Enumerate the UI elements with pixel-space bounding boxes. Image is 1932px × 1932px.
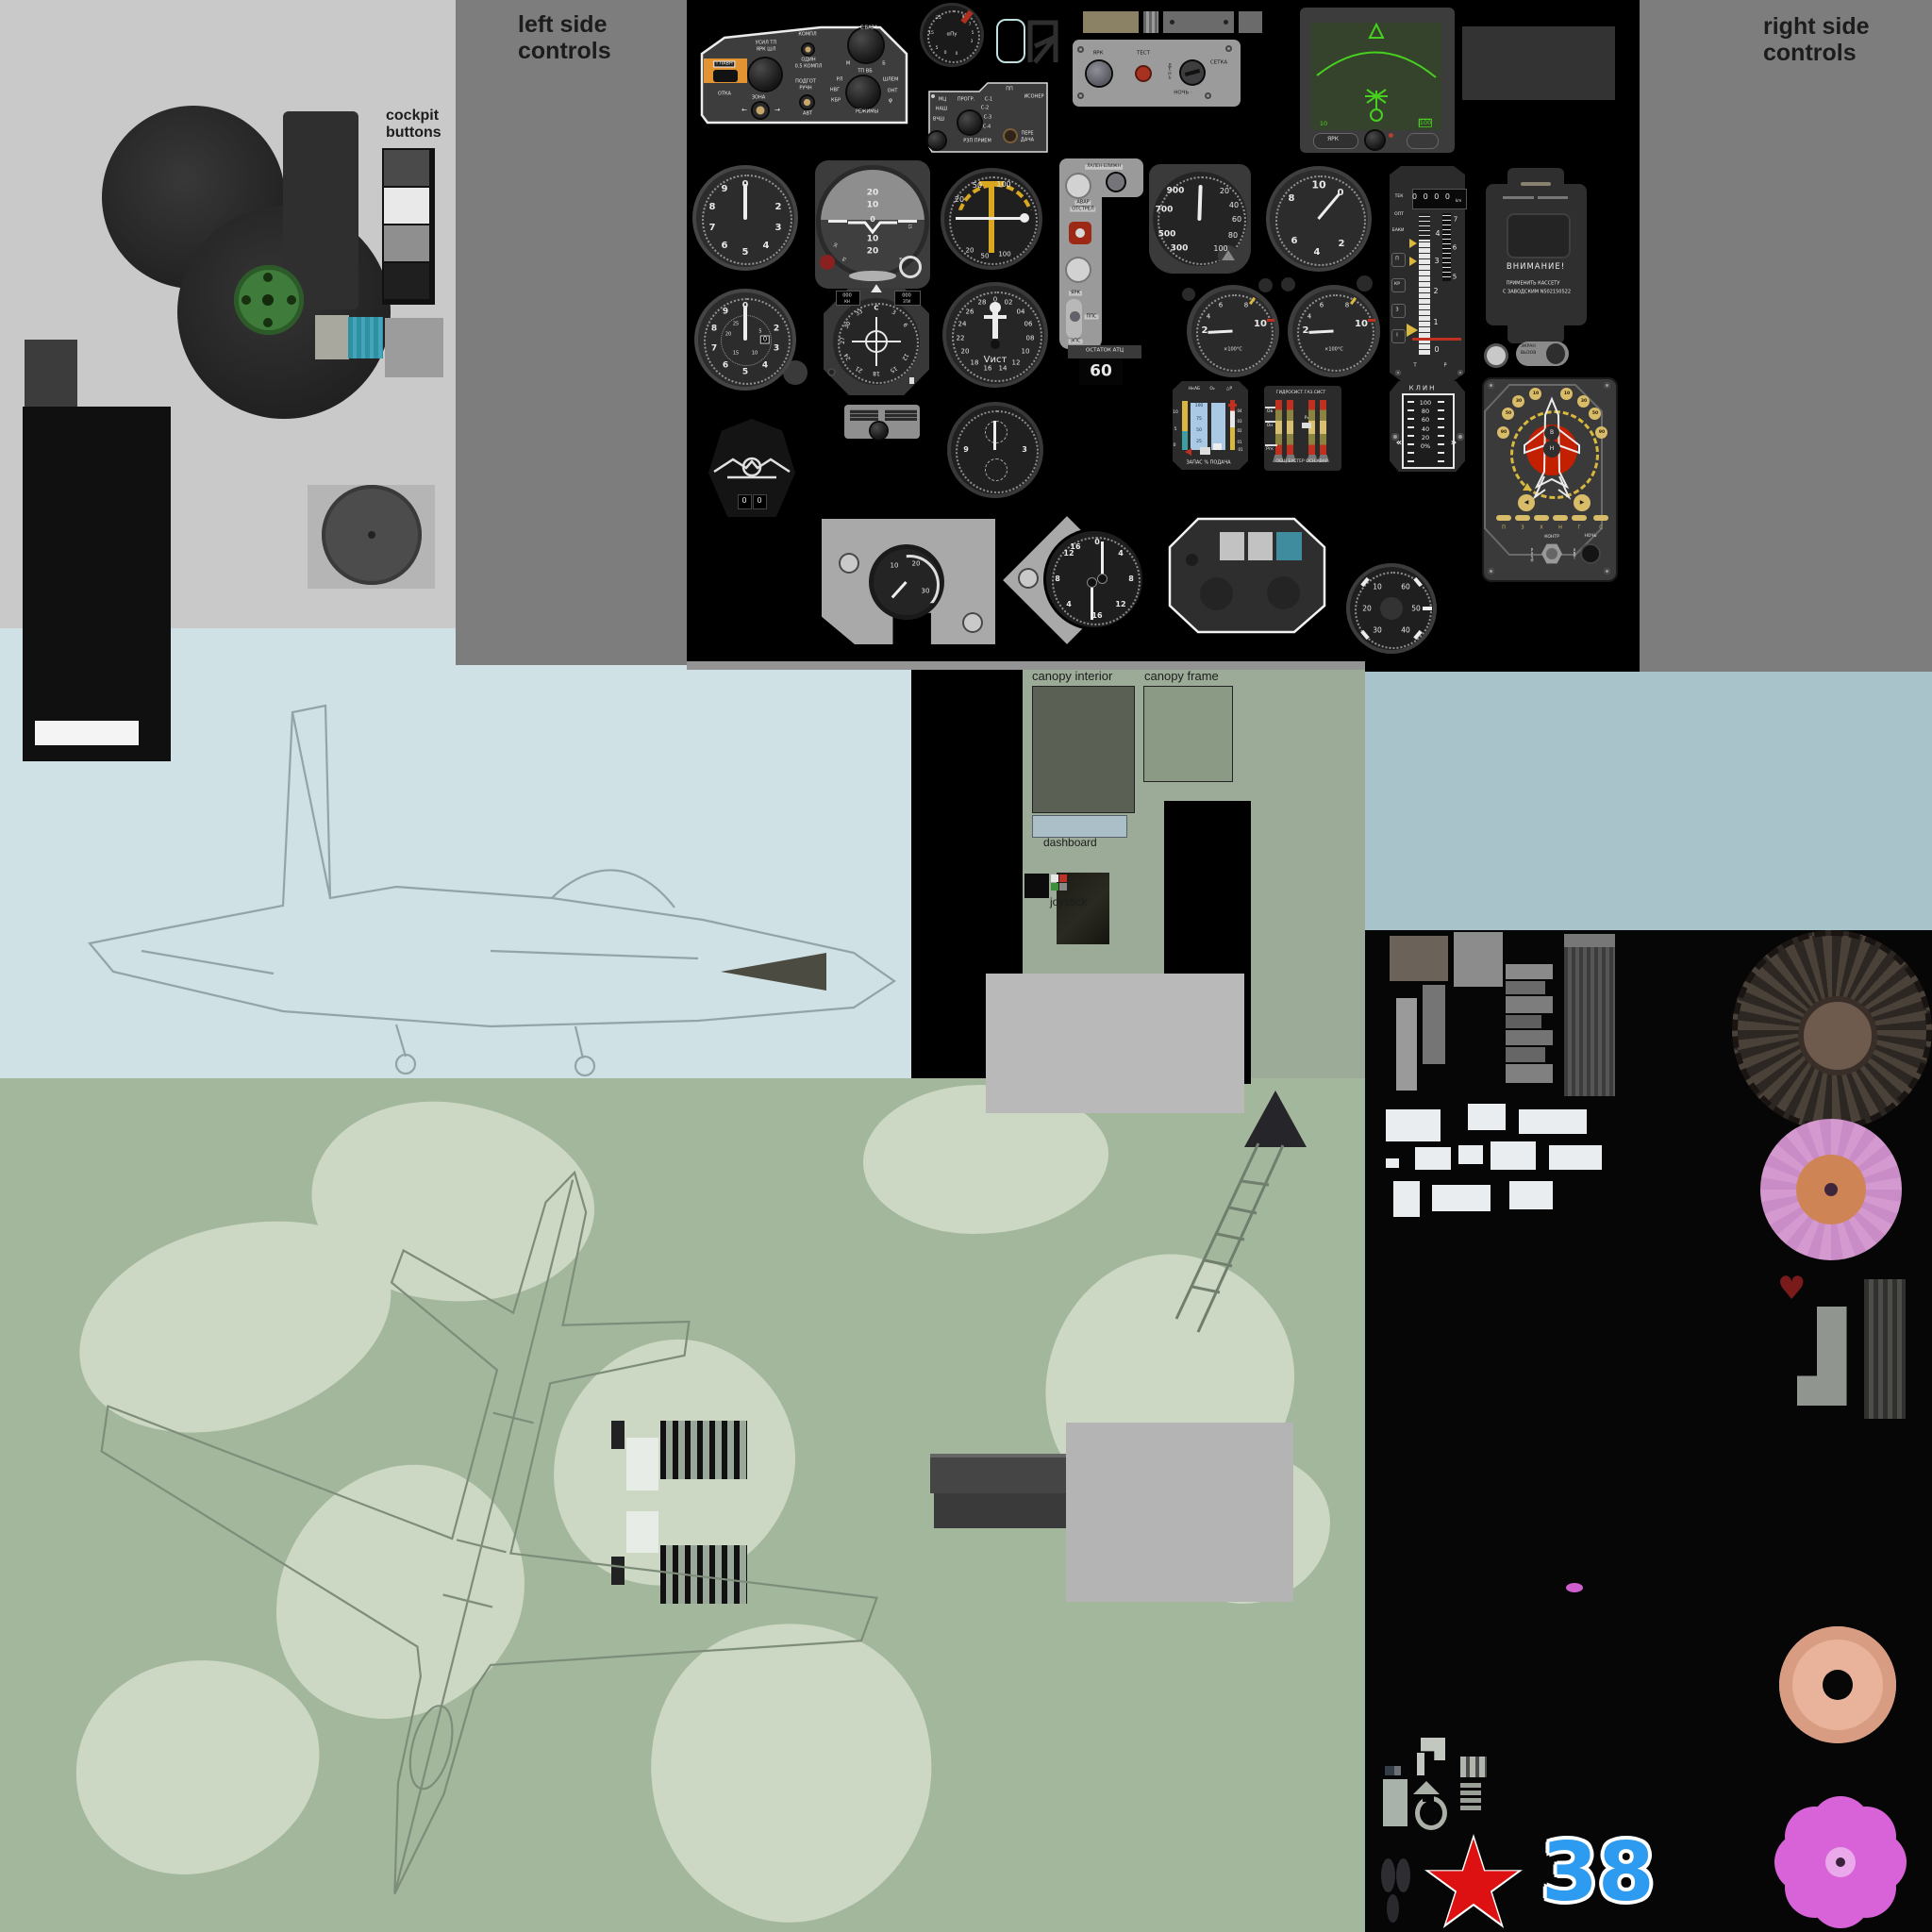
gear-door-white <box>1432 1185 1491 1211</box>
missile-lamp-value: 90 <box>1599 431 1605 436</box>
fuel-ladder-scale: 3 <box>1434 258 1439 265</box>
yark-knob <box>1087 61 1111 86</box>
rezhimy-knob <box>847 76 879 108</box>
left-panel-label: ПОДГОТ <box>795 80 816 85</box>
zone-right-arrow: → <box>774 108 780 114</box>
vist-figure-arms <box>984 315 1007 319</box>
missile-yellow-triangle <box>1523 483 1532 491</box>
fuel-ladder-button-label: I <box>1396 334 1397 339</box>
left-panel-label: АВТ <box>803 112 812 117</box>
vist-figure-head <box>990 302 1001 313</box>
taupe-box-part <box>1390 936 1448 981</box>
hub-lug <box>287 295 296 305</box>
ladder-rung <box>1460 1783 1481 1788</box>
gear-door-white <box>1458 1145 1483 1164</box>
intake-part <box>934 1493 1066 1528</box>
fuel-ladder-scale: 4 <box>1435 230 1440 238</box>
plate-screw <box>839 553 859 574</box>
rpm-gauge-scale: 40 <box>1401 626 1410 634</box>
louver <box>1506 1030 1553 1045</box>
small-dark-circle <box>1182 288 1195 301</box>
panel-screw <box>1077 46 1084 53</box>
joystick-swatch-gray <box>1059 883 1067 891</box>
dualclock-scale: 9 <box>723 308 728 317</box>
warning-light-bar <box>1538 196 1568 199</box>
fuel-ladder-counter: 0 0 0 0 <box>1412 193 1452 201</box>
missile-lamp-value: 10 <box>1564 392 1570 397</box>
dualclock-scale: 8 <box>711 325 717 334</box>
fuel-remaining-value: 60 <box>1090 364 1112 380</box>
hsi-window: КН <box>844 300 850 304</box>
panel-screw <box>1205 92 1211 99</box>
nozzle-white-part <box>626 1438 658 1491</box>
aoa-scale: 5 <box>936 47 939 52</box>
hub-center <box>262 294 274 306</box>
hex-knob-core <box>1546 548 1557 559</box>
oxygen-panel-label: НкАБ <box>1189 388 1200 392</box>
diamond-needle-up <box>1101 541 1104 579</box>
fuel-ladder-label: Р <box>1443 364 1446 369</box>
bar-dot <box>1170 20 1174 25</box>
gray-bar-part2 <box>1239 11 1262 33</box>
dualclock-inner-scale: 25 <box>733 323 739 327</box>
oxygen-white-box <box>1200 447 1210 455</box>
label-canopy-frame: canopy frame <box>1144 670 1219 684</box>
klin-chevron: « <box>1396 439 1402 448</box>
test-panel-label: НОЧЬ · <box>1174 91 1192 96</box>
missile-lamp-letter: З <box>1521 526 1524 531</box>
radio-text-block <box>850 409 878 421</box>
part-tall-black <box>23 407 171 761</box>
zone-left-band <box>456 0 687 665</box>
jettison-panel-label: ЯРК <box>1069 291 1082 296</box>
sbaza-knob <box>849 28 883 62</box>
diamond-pivot <box>1088 578 1096 587</box>
vario-scale: 100 <box>996 181 1010 189</box>
radio-text-block <box>885 409 917 421</box>
radio-knob <box>871 423 887 439</box>
aoa-scale: 3 <box>971 40 974 43</box>
altimeter-scale: 2 <box>1339 240 1345 249</box>
hydro-line <box>1265 407 1275 408</box>
octagon-circle <box>1200 577 1233 610</box>
turbine-fan-texture <box>1732 930 1932 1130</box>
fuel-ladder-button-label: КР <box>1394 283 1400 288</box>
gear-door-white <box>1549 1145 1602 1170</box>
attitude-pitch-scale: 10 <box>867 236 879 244</box>
eject-arrow-icon <box>1413 1781 1440 1794</box>
clock-scale: 3 <box>775 224 782 233</box>
egt2-red-mark <box>1368 319 1375 322</box>
hydraulic-panel-label: Ов <box>1267 410 1273 415</box>
striped-block-part <box>1864 1279 1906 1419</box>
cockpit-button-black <box>384 263 429 299</box>
oxygen-scale: 100 <box>1195 405 1204 409</box>
oxygen-scale: 03 <box>1237 420 1241 424</box>
jettison-panel-label: ОТСТРЕЛ <box>1070 208 1095 212</box>
label-cockpit-buttons: cockpit buttons <box>386 108 441 142</box>
dualclock-ear <box>783 360 808 385</box>
rpm-gauge-scale: 10 <box>1373 583 1382 591</box>
oxygen-scale: 5 <box>1174 428 1177 433</box>
egt1-scale: 10 <box>1254 320 1267 329</box>
jettison-slider-thumb <box>1070 311 1080 322</box>
hsi-window: ЗТИ <box>903 300 910 304</box>
vario-scale: 50 <box>981 254 990 260</box>
warning-screen <box>1507 213 1571 258</box>
left-panel-label: ГЛАВН <box>714 62 734 67</box>
oxygen-scale: 04 <box>1237 409 1241 413</box>
ladder-rung <box>1460 1806 1481 1810</box>
attitude-pitch-scale: 20 <box>867 190 879 198</box>
jettison-red-button <box>1069 222 1091 244</box>
gear-door-white <box>1386 1158 1399 1168</box>
fuel-yellow-arrow <box>1407 324 1418 337</box>
pink-donut-texture <box>1760 1119 1902 1260</box>
light-gray-plate <box>986 974 1244 1113</box>
warning-panel-tab <box>1507 323 1564 343</box>
pressure-gauge-scale: 20 <box>912 561 921 568</box>
egt1-unit: ×100°C <box>1224 348 1242 353</box>
oxygen-scale: 0 <box>1174 444 1176 449</box>
ekran-label: ЭКРАН <box>1521 345 1536 350</box>
diamond-clock-scale: 4 <box>1066 601 1072 608</box>
vertical-strip-part <box>1396 998 1417 1091</box>
ladder-rung <box>1460 1790 1481 1795</box>
vertical-strip-part <box>1423 985 1445 1064</box>
vist-scale: 14 <box>999 366 1008 373</box>
hsi-compass-scale: 18 <box>873 370 880 375</box>
dualclock-scale: 5 <box>742 369 748 377</box>
chrono-subdial <box>985 421 1008 443</box>
nozzle-white-part <box>626 1511 658 1553</box>
egt2-scale: 4 <box>1307 314 1311 321</box>
gear-door-white <box>1491 1141 1536 1170</box>
fuel-ladder-label: ОПТ <box>1394 213 1404 218</box>
striped-part <box>1143 11 1158 33</box>
hydro-line <box>1265 444 1277 446</box>
left-panel-label: ШЛЕМ <box>883 78 899 83</box>
glavn-switch-handle <box>713 70 738 82</box>
vist-scale: 0 <box>993 297 997 304</box>
hsi-compass-scale: 27 <box>841 337 846 344</box>
missile-lamp-value: 10 <box>1533 392 1539 397</box>
dualclock-inner-scale: 5 <box>758 330 761 335</box>
program-panel-label: ПП <box>1006 88 1013 92</box>
oxygen-scale: 50 <box>1196 429 1202 434</box>
egt1-scale: 4 <box>1207 314 1210 321</box>
left-panel-label: УСИЛ ТП <box>756 42 776 46</box>
hub-lug <box>241 295 251 305</box>
rpm-gauge-scale: 20 <box>1362 605 1372 612</box>
missile-lamp-letter: П <box>1502 526 1506 531</box>
round-plate-disc <box>322 485 422 585</box>
dualclock-scale: 0 <box>742 303 748 311</box>
warning-title: ВНИМАНИЕ! <box>1507 263 1565 272</box>
missile-lozenge <box>1553 515 1568 521</box>
part-teal-striped <box>348 317 383 358</box>
louver <box>1506 981 1545 994</box>
hydraulic-panel-label: ОБЩ БУСТЕР ОСН.АВАР <box>1275 460 1327 465</box>
egt1-scale: 6 <box>1219 303 1223 309</box>
vist-scale: 04 <box>1017 309 1025 316</box>
klin-screw <box>1457 433 1464 441</box>
diamond-screw <box>1018 568 1039 589</box>
clock-scale: 8 <box>709 203 716 212</box>
fuel-ladder-scale: 7 <box>1454 217 1457 224</box>
usil-tp-knob <box>749 58 781 91</box>
louver-stack <box>1506 964 1553 1085</box>
aoa-scale: 7 <box>969 23 972 26</box>
left-panel-label: ОТКА <box>718 92 731 97</box>
ladder-rung <box>1460 1798 1481 1803</box>
attitude-red-knob <box>820 255 835 270</box>
left-panel-label: НВГ <box>830 89 840 93</box>
label-left-side-controls: left side controls <box>518 11 611 64</box>
altimeter-scale: 10 <box>1311 180 1325 191</box>
vist-scale: 18 <box>971 360 979 367</box>
egt2-scale: 2 <box>1303 326 1309 336</box>
fuel-ladder-label: БАКИ <box>1392 229 1405 234</box>
program-panel-label: ПРОГР. <box>958 98 974 103</box>
plate-screw <box>962 612 983 633</box>
cap-part-light <box>1394 1766 1401 1775</box>
hydraulic-panel-label: Он <box>1267 425 1273 429</box>
test-red-button <box>1137 67 1150 80</box>
vario-scale: 50 <box>973 182 982 190</box>
oxygen-panel-label: ЗАПАС % ПОДАЧА <box>1186 461 1230 466</box>
tan-strip-part <box>1083 11 1139 33</box>
aoa-scale: 0 <box>956 52 958 56</box>
test-panel-label: ЯРК <box>1092 51 1103 57</box>
missile-screw <box>1604 382 1610 389</box>
rpm-gauge-scale: 30 <box>1373 626 1382 634</box>
cyan-outline-part <box>996 19 1025 63</box>
altimeter-scale: 0 <box>1338 189 1344 198</box>
setka-knob <box>1181 61 1204 84</box>
left-panel-label: ТП ВБ <box>858 69 872 74</box>
vist-scale: 10 <box>1022 349 1030 356</box>
magenta-flower-texture <box>1788 1809 1893 1915</box>
radiator-part <box>1564 934 1615 1096</box>
vist-scale: 20 <box>961 349 970 356</box>
missile-lozenge <box>1515 515 1530 521</box>
hub-lug <box>263 273 273 282</box>
dualclock-scale: 6 <box>723 362 728 371</box>
warning-text: ПРИМЕНИТЬ КАССЕТУ <box>1507 282 1560 287</box>
joystick-swatch-green <box>1051 883 1058 891</box>
louver <box>1506 964 1553 979</box>
turbine-hub <box>1798 996 1877 1075</box>
white-slot <box>35 721 139 745</box>
dualclock-scale: 3 <box>774 345 779 354</box>
program-small-knob <box>928 132 945 149</box>
hsi-window: 000 <box>842 294 852 299</box>
louver <box>1506 1064 1553 1083</box>
hydraulic-panel-label: Ргк <box>1266 448 1274 453</box>
gear-door-white <box>1509 1181 1553 1209</box>
flower-hole <box>1836 1857 1845 1867</box>
left-panel-label: РЕЖИМЫ <box>856 110 878 115</box>
missile-arrow-right: ▶ <box>1580 500 1585 506</box>
missile-lozenge <box>1496 515 1511 521</box>
program-panel-label: С-1 <box>985 98 992 103</box>
hsi-window: 000 <box>902 294 911 299</box>
crt-brightness-label: ЯРК <box>1327 137 1339 142</box>
label-right-side-controls: right side controls <box>1763 13 1870 66</box>
missile-lamp-value: 50 <box>1506 412 1511 417</box>
cockpit-button-white <box>384 188 429 225</box>
oxygen-scale: 75 <box>1196 418 1202 423</box>
clock-scale: 2 <box>775 203 782 212</box>
diamond-pivot <box>1098 575 1107 583</box>
vario-scale: 100 <box>998 252 1010 258</box>
diamond-clock-scale: 16 <box>1091 612 1102 620</box>
missile-lamp-letter: Х <box>1540 526 1542 531</box>
zone-blue-right <box>1365 672 1932 930</box>
program-panel-label: С-3 <box>984 116 991 121</box>
fuel-ladder-scale: 2 <box>1433 288 1438 295</box>
left-panel-label: КОМПЛ <box>798 33 816 38</box>
test-panel-label: Д Е Н Ь <box>1168 64 1172 80</box>
missile-lozenge <box>1572 515 1587 521</box>
joystick-black-square <box>1024 874 1049 898</box>
kompl-knob <box>803 44 813 55</box>
gear-door-white <box>1386 1109 1441 1141</box>
pink-donut-hole <box>1824 1183 1838 1196</box>
egt2-scale: 10 <box>1355 320 1368 329</box>
crt-range-high: 100 <box>1420 120 1431 126</box>
missile-lamp-letter: С <box>1599 526 1603 531</box>
dualclock-scale: 7 <box>711 345 717 354</box>
left-panel-label: 0.5 КОМПЛ <box>795 64 823 69</box>
program-panel-label: ВЧШ <box>933 118 944 123</box>
red-button-core <box>1075 228 1085 238</box>
aoa-scale: 9 <box>962 15 965 19</box>
oxygen-left-bar <box>1182 401 1188 450</box>
jettison-panel-label: АВАР <box>1074 201 1091 206</box>
missile-lozenge <box>1593 515 1608 521</box>
clock-scale: 7 <box>709 224 716 233</box>
klin-tick-column <box>1438 398 1444 462</box>
fuel-ladder-label: ТЕК <box>1395 195 1404 200</box>
left-panel-label: РЛ <box>837 78 843 83</box>
octagon-small-circle <box>1186 554 1198 566</box>
panel-screw <box>1077 92 1084 99</box>
aoa-scale: 0 <box>944 52 947 57</box>
rpm-heavy-mark <box>1423 607 1432 610</box>
nozzle-stripes <box>660 1421 747 1479</box>
hydraulic-panel-title: ГИДРОСИСТ.ГАЗ.СИСТ <box>1276 391 1325 396</box>
program-panel-label: ПЕРЕ <box>1021 132 1033 137</box>
gear-door-white <box>1468 1104 1506 1130</box>
gear-door-white <box>1415 1147 1451 1170</box>
oxygen-scale: 01 <box>1238 448 1242 452</box>
missile-lozenge <box>1534 515 1549 521</box>
nozzle-stripes <box>660 1545 747 1604</box>
texture-atlas-canvas: left side controls right side controls c… <box>0 0 1932 1932</box>
hydro-bar <box>1275 400 1282 455</box>
label-joystick: joystick <box>1050 896 1087 908</box>
diamond-clock-scale: 8 <box>1128 575 1134 583</box>
missile-lamp-value: 90 <box>1501 431 1507 436</box>
joystick-swatch-red <box>1059 874 1067 882</box>
cockpit-button-strip <box>382 148 435 305</box>
attitude-horizon-bar <box>828 220 847 223</box>
missile-lamp-value: 50 <box>1592 412 1598 417</box>
fuel-screw <box>1395 370 1401 375</box>
diamond-clock-scale: 12 <box>1115 601 1125 608</box>
left-panel-label: Б <box>882 62 885 67</box>
program-panel-label: РЗП ПРИЕМ <box>963 140 991 144</box>
octagon-circle <box>1267 576 1300 609</box>
vist-scale: 26 <box>966 309 974 316</box>
peredacha-button <box>1005 130 1016 142</box>
fuel-yellow-arrow <box>1409 239 1417 248</box>
klin-tick-column <box>1407 398 1414 462</box>
diamond-clock-scale: 8 <box>1055 575 1060 583</box>
left-panel-label: М <box>846 62 850 67</box>
dualclock-inner-scale: 20 <box>725 333 731 338</box>
emblem-counter: 0 <box>757 497 761 505</box>
hydro-p2-box <box>1302 423 1311 428</box>
small-dark-circle <box>1281 277 1295 291</box>
jettison-knob <box>1108 174 1124 191</box>
label-dashboard: dashboard <box>1043 837 1097 849</box>
missile-screw <box>1604 568 1610 575</box>
dark-oval-part <box>1396 1858 1410 1892</box>
missile-indicator-label: Р У Ч Н <box>1530 548 1533 562</box>
vist-scale: 08 <box>1026 336 1035 342</box>
altimeter-scale: 6 <box>1291 237 1298 246</box>
clock-scale: 9 <box>722 185 728 194</box>
hydro-line <box>1265 421 1275 423</box>
joystick-swatch-white <box>1051 874 1058 882</box>
program-panel-label: С-2 <box>981 107 989 111</box>
warning-text: С ЗАВОДСКИМ N502150522 <box>1503 291 1571 295</box>
rpm-gauge-scale: 60 <box>1401 583 1410 591</box>
disc-center <box>368 531 375 539</box>
clock-scale: 4 <box>763 241 770 251</box>
panel-bottom-strip <box>687 661 1365 670</box>
bar-dot <box>1224 20 1228 25</box>
night-button <box>1582 545 1599 562</box>
panel-screw <box>1225 45 1232 52</box>
missile-lamp-value: 30 <box>1516 400 1522 405</box>
airspeed-scale: 300 <box>1171 245 1189 254</box>
lamp-square-white <box>1248 532 1273 560</box>
fuel-ladder-label: Т <box>1413 364 1416 369</box>
radar-crt-screen <box>1311 23 1441 130</box>
attitude-bank-scale: 15 <box>908 224 911 228</box>
louver <box>1506 1047 1545 1062</box>
small-dark-circle <box>1357 275 1373 291</box>
knob-slot <box>1185 69 1200 76</box>
part-dark-rect <box>25 340 77 407</box>
vist-scale: 06 <box>1024 322 1033 328</box>
gear-door-white <box>1519 1109 1587 1134</box>
missile-indicator-label: НОЧЬ <box>1584 535 1596 540</box>
attitude-pitch-scale: 0 <box>870 216 875 224</box>
oxygen-panel-label: △Р <box>1226 388 1232 392</box>
airspeed-scale: 900 <box>1167 188 1185 196</box>
crt-range-low: 10 <box>1320 121 1327 127</box>
klin-title: КЛИН <box>1409 386 1437 392</box>
gray-block-part <box>1066 1423 1293 1602</box>
left-panel-label: ОДИН <box>801 58 815 63</box>
airspeed-scale: 40 <box>1229 202 1239 209</box>
part-gray-square <box>385 318 443 377</box>
